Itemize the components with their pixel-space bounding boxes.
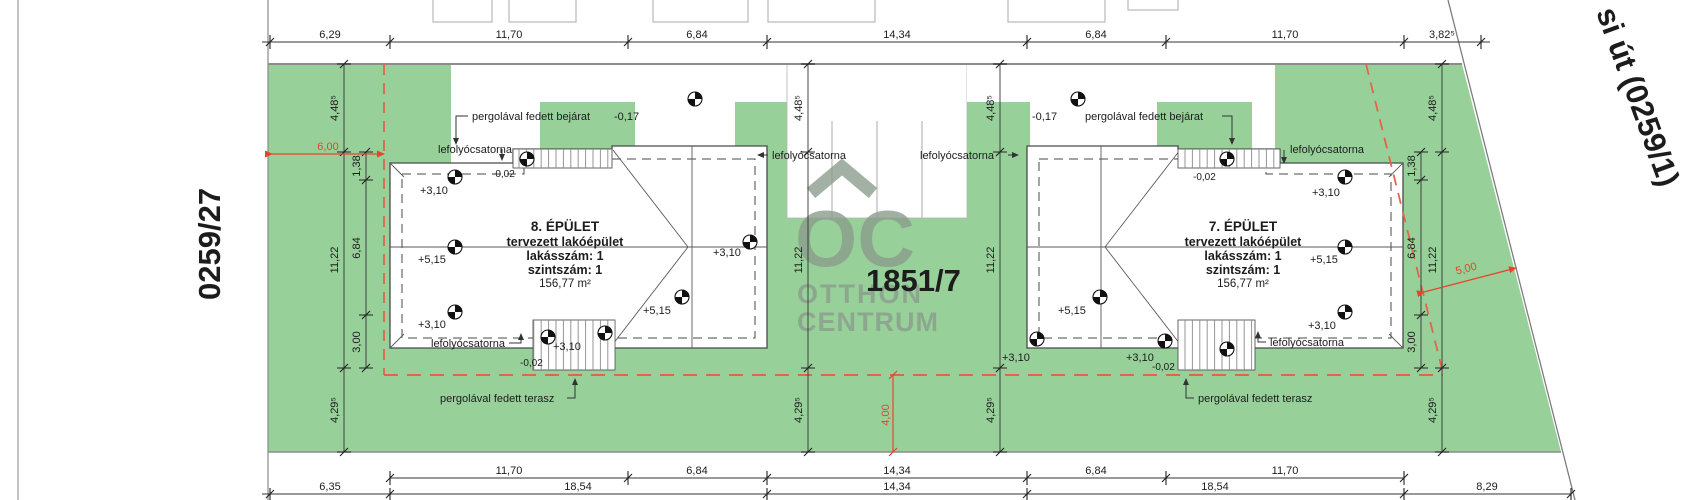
level-marker-icon bbox=[598, 326, 612, 340]
building-7-area: 156,77 m² bbox=[1217, 278, 1269, 290]
level-marker-icon bbox=[1030, 332, 1044, 346]
street-strip bbox=[735, 64, 787, 102]
level-eave: +3,10 bbox=[1312, 187, 1340, 199]
building-8: 8. ÉPÜLET tervezett lakóépület lakásszám… bbox=[390, 146, 767, 370]
building-8-units: lakásszám: 1 bbox=[526, 249, 603, 263]
site-plan-page: OC OTTHON CENTRUM 1851/7 8. ÉPÜLET terve… bbox=[0, 0, 1687, 500]
dim-bottom1-0: 11,70 bbox=[496, 465, 523, 477]
dim-left-outer-0: 4,48⁵ bbox=[329, 95, 341, 121]
building-7-type: tervezett lakóépület bbox=[1185, 235, 1303, 249]
neighbor-parcel-label: 0259/27 bbox=[192, 188, 227, 300]
neighbor-house bbox=[1008, 0, 1105, 22]
downspout-label-7-topright: lefolyócsatorna bbox=[1290, 144, 1365, 156]
building-7-units: lakásszám: 1 bbox=[1204, 249, 1281, 263]
dim-top-1: 11,70 bbox=[496, 29, 523, 41]
pergola-entrance-label-7: pergolával fedett bejárat bbox=[1085, 111, 1203, 123]
dim-center-left-1: 11,22 bbox=[793, 247, 805, 274]
level-marker-icon bbox=[448, 305, 462, 319]
level-marker-icon bbox=[688, 92, 702, 106]
level-marker-icon bbox=[1338, 240, 1352, 254]
level-eave: +3,10 bbox=[420, 185, 448, 197]
neighbor-house bbox=[509, 0, 576, 22]
level-marker-icon bbox=[1338, 170, 1352, 184]
downspout-label-7-bottom: lefolyócsatorna bbox=[1270, 337, 1345, 349]
dim-left-outer-1: 11,22 bbox=[329, 247, 341, 274]
level-eave: +3,10 bbox=[1126, 352, 1154, 364]
dim-right-inner-1: 6,84 bbox=[1406, 237, 1418, 258]
entrance-level-7: -0,17 bbox=[1032, 111, 1057, 123]
pergola-terrace-label-8: pergolával fedett terasz bbox=[440, 393, 554, 405]
downspout-label-8-right: lefolyócsatorna bbox=[772, 150, 847, 162]
walkway bbox=[1030, 64, 1157, 148]
street-strip bbox=[1157, 64, 1252, 102]
level-ridge: +5,15 bbox=[1058, 305, 1086, 317]
dim-top-5: 11,70 bbox=[1272, 29, 1299, 41]
street-strip bbox=[540, 64, 635, 102]
neighbor-house bbox=[653, 0, 748, 22]
level-eave: +3,10 bbox=[553, 341, 581, 353]
dim-center-left-0: 4,48⁵ bbox=[793, 95, 805, 121]
street-strip bbox=[967, 64, 1030, 102]
level-marker-icon bbox=[520, 152, 534, 166]
pergola-entrance-label-8: pergolával fedett bejárat bbox=[472, 111, 590, 123]
dim-left-inner-0: 1,38 bbox=[351, 155, 363, 176]
dim-top-6: 3,82⁵ bbox=[1429, 29, 1455, 41]
downspout-label-8-bottom: lefolyócsatorna bbox=[431, 338, 506, 350]
dim-bottom2-0: 6,35 bbox=[319, 481, 340, 493]
dim-bottom1-3: 6,84 bbox=[1085, 465, 1106, 477]
dim-top-0: 6,29 bbox=[319, 29, 340, 41]
level-marker-icon bbox=[1071, 92, 1085, 106]
dim-bottom2-4: 8,29 bbox=[1476, 481, 1497, 493]
dim-left-inner-2: 3,00 bbox=[351, 331, 363, 352]
dim-right-outer-2: 4,29⁵ bbox=[1427, 397, 1439, 423]
dim-bottom2-2: 14,34 bbox=[883, 481, 911, 493]
dim-top-3: 14,34 bbox=[883, 29, 911, 41]
level-marker-icon bbox=[1158, 334, 1172, 348]
level-eave: +3,10 bbox=[1002, 352, 1030, 364]
setback-bottom-dim: 4,00 bbox=[880, 404, 892, 425]
dim-left-outer-2: 4,29⁵ bbox=[329, 397, 341, 423]
neighbor-house bbox=[1128, 0, 1178, 10]
dim-right-outer-0: 4,48⁵ bbox=[1427, 95, 1439, 121]
site-plan-drawing: OC OTTHON CENTRUM 1851/7 8. ÉPÜLET terve… bbox=[0, 0, 1687, 500]
dim-top-2: 6,84 bbox=[686, 29, 707, 41]
building-8-title: 8. ÉPÜLET bbox=[531, 219, 600, 234]
threshold-level-8-top: -0,02 bbox=[492, 169, 515, 180]
pergola-terrace-hatch-lines bbox=[1178, 320, 1255, 370]
threshold-level-7-top: -0,02 bbox=[1193, 172, 1216, 183]
downspout-label-8-top: lefolyócsatorna bbox=[438, 144, 513, 156]
level-marker-icon bbox=[675, 290, 689, 304]
dim-center-left-2: 4,29⁵ bbox=[793, 397, 805, 423]
walkway bbox=[635, 64, 735, 148]
level-marker-icon bbox=[1220, 342, 1234, 356]
level-marker-icon bbox=[448, 170, 462, 184]
building-8-area: 156,77 m² bbox=[539, 278, 591, 290]
level-eave: +3,10 bbox=[418, 319, 446, 331]
dim-center-right-1: 11,22 bbox=[985, 247, 997, 274]
building-7-floors: szintszám: 1 bbox=[1206, 263, 1280, 277]
dim-center-right-2: 4,29⁵ bbox=[985, 397, 997, 423]
watermark-line2: CENTRUM bbox=[797, 307, 939, 337]
building-7-title: 7. ÉPÜLET bbox=[1209, 219, 1278, 234]
level-marker-icon bbox=[743, 235, 757, 249]
level-eave: +3,10 bbox=[1308, 320, 1336, 332]
level-eave: +3,10 bbox=[713, 247, 741, 259]
setback-left-dim: 6,00 bbox=[317, 141, 338, 153]
dim-bottom1-4: 11,70 bbox=[1272, 465, 1299, 477]
dim-left-inner-1: 6,84 bbox=[351, 237, 363, 258]
level-marker-icon bbox=[1338, 305, 1352, 319]
level-marker-icon bbox=[448, 240, 462, 254]
dim-top-4: 6,84 bbox=[1085, 29, 1106, 41]
threshold-level-8-bottom: -0,02 bbox=[520, 358, 543, 369]
dim-right-outer-1: 11,22 bbox=[1427, 247, 1439, 274]
dim-bottom1-2: 14,34 bbox=[883, 465, 911, 477]
dim-bottom1-1: 6,84 bbox=[686, 465, 707, 477]
dim-bottom2-3: 18,54 bbox=[1201, 481, 1229, 493]
neighbor-building-outlines bbox=[433, 0, 1178, 22]
neighbor-house bbox=[433, 0, 492, 22]
level-marker-icon bbox=[1220, 152, 1234, 166]
level-marker-icon bbox=[541, 330, 555, 344]
entrance-level-8: -0,17 bbox=[614, 111, 639, 123]
level-marker-icon bbox=[1093, 290, 1107, 304]
level-ridge: +5,15 bbox=[643, 305, 671, 317]
site-parcel-number: 1851/7 bbox=[866, 263, 961, 298]
threshold-level-7-bottom: -0,02 bbox=[1152, 362, 1175, 373]
dim-center-right-0: 4,48⁵ bbox=[985, 95, 997, 121]
pergola-terrace-label-7: pergolával fedett terasz bbox=[1198, 393, 1312, 405]
dim-right-inner-2: 3,00 bbox=[1406, 331, 1418, 352]
building-8-type: tervezett lakóépület bbox=[507, 235, 625, 249]
neighbor-house bbox=[768, 0, 875, 22]
level-ridge: +5,15 bbox=[1310, 254, 1338, 266]
dim-right-inner-0: 1,38 bbox=[1406, 155, 1418, 176]
dim-bottom2-1: 18,54 bbox=[564, 481, 592, 493]
building-8-floors: szintszám: 1 bbox=[528, 263, 602, 277]
level-ridge: +5,15 bbox=[418, 254, 446, 266]
downspout-label-7-left: lefolyócsatorna bbox=[920, 150, 995, 162]
